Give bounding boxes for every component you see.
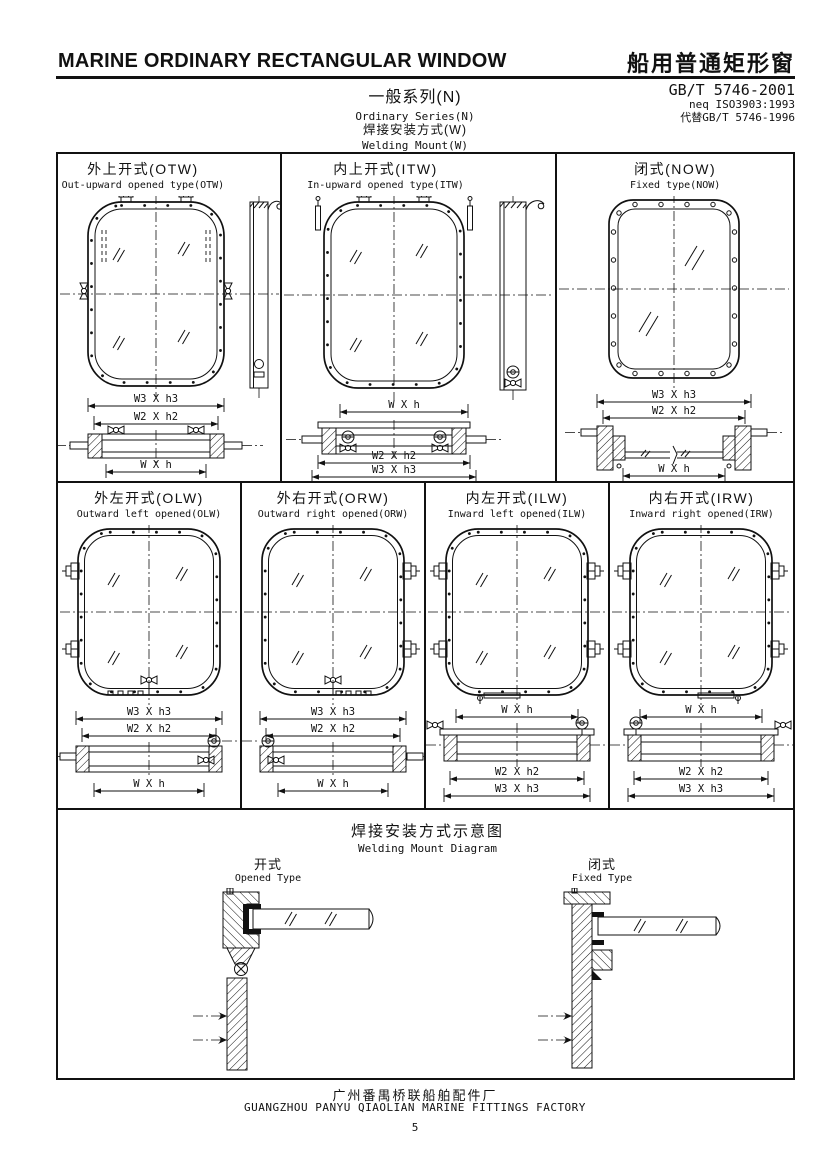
ilw-section-view (426, 717, 609, 767)
svg-text:W2 X h2: W2 X h2 (495, 766, 539, 778)
panel-orw-title-zh: 外右开式(ORW) (242, 488, 424, 508)
panel-olw-title: 外左开式(OLW) Outward left opened(OLW) (58, 483, 240, 525)
irw-drawing: W X h (610, 525, 793, 808)
drawing-table: 外上开式(OTW) Out-upward opened type(OTW) (56, 152, 795, 1080)
panel-itw-title-zh: 内上开式(ITW) (282, 159, 490, 179)
svg-text:W3 X h3: W3 X h3 (311, 706, 355, 718)
svg-text:W3 X h3: W3 X h3 (652, 389, 696, 401)
svg-text:W X h: W X h (658, 463, 690, 475)
panel-irw-title-zh: 内右开式(IRW) (610, 488, 793, 508)
welding-opened-label: 开式 Opened Type (198, 854, 338, 884)
ilw-dim-3: W3 X h3 (444, 783, 590, 802)
otw-front-view (60, 196, 279, 398)
panel-otw-title-en: Out-upward opened type(OTW) (58, 180, 228, 191)
itw-dim-1: W X h (340, 399, 468, 418)
mount-title-zh: 焊接安装方式(W) (255, 119, 575, 138)
olw-drawing: W3 X h3 W2 X h2 (58, 525, 241, 808)
welding-fixed-zh: 闭式 (532, 854, 672, 873)
panel-otw-title: 外上开式(OTW) Out-upward opened type(OTW) (58, 154, 280, 196)
now-drawing: W3 X h3 W2 X h2 (557, 196, 792, 481)
panel-orw-title: 外右开式(ORW) Outward right opened(ORW) (242, 483, 424, 525)
svg-text:W2 X h2: W2 X h2 (652, 405, 696, 417)
welding-fixed-drawing (538, 888, 753, 1074)
standard-equivalence: neq ISO3903:1993 (669, 99, 795, 112)
row-2: 外左开式(OLW) Outward left opened(OLW) (58, 483, 793, 810)
panel-irw-title: 内右开式(IRW) Inward right opened(IRW) (610, 483, 793, 525)
panel-irw-title-en: Inward right opened(IRW) (610, 509, 793, 520)
olw-section-view (58, 735, 241, 776)
panel-irw: 内右开式(IRW) Inward right opened(IRW) (610, 483, 793, 808)
irw-dim-1: W X h (640, 704, 762, 723)
panel-ilw-title-en: Inward left opened(ILW) (426, 509, 608, 520)
panel-itw-title: 内上开式(ITW) In-upward opened type(ITW) (282, 154, 556, 196)
welding-title-en: Welding Mount Diagram (58, 842, 797, 855)
ilw-dim-1: W X h (456, 704, 578, 723)
svg-text:W3 X h3: W3 X h3 (495, 783, 539, 795)
panel-olw: 外左开式(OLW) Outward left opened(OLW) (58, 483, 242, 808)
welding-opened-en: Opened Type (198, 873, 338, 884)
svg-text:W X h: W X h (685, 704, 717, 716)
svg-text:W2 X h2: W2 X h2 (679, 766, 723, 778)
series-block: 一般系列(N) Ordinary Series(N) (255, 83, 575, 123)
panel-ilw-title: 内左开式(ILW) Inward left opened(ILW) (426, 483, 608, 525)
ilw-front-view (428, 525, 607, 705)
standard-code: GB/T 5746-2001 (669, 82, 795, 99)
welding-opened-zh: 开式 (198, 854, 338, 873)
page-number: 5 (0, 1121, 830, 1134)
panel-olw-title-zh: 外左开式(OLW) (58, 488, 240, 508)
svg-text:W3 X h3: W3 X h3 (372, 464, 416, 476)
irw-dim-3: W3 X h3 (628, 783, 774, 802)
panel-now-title: 闭式(NOW) Fixed type(NOW) (557, 154, 793, 196)
otw-dim-3: W X h (106, 459, 206, 478)
panel-otw-title-zh: 外上开式(OTW) (58, 159, 228, 179)
standard-block: GB/T 5746-2001 neq ISO3903:1993 代替GB/T 5… (669, 82, 795, 125)
irw-front-view (612, 525, 791, 705)
orw-front-view (244, 525, 423, 705)
panel-olw-title-en: Outward left opened(OLW) (58, 509, 240, 520)
ilw-drawing: W X h (426, 525, 609, 808)
orw-drawing: W3 X h3 W2 X h2 (242, 525, 425, 808)
orw-section-view (242, 735, 425, 776)
olw-dim-2: W2 X h2 (82, 723, 216, 742)
panel-orw: 外右开式(ORW) Outward right opened(ORW) (242, 483, 426, 808)
panel-now-title-zh: 闭式(NOW) (557, 159, 793, 179)
factory-name-en: GUANGZHOU PANYU QIAOLIAN MARINE FITTINGS… (0, 1101, 830, 1114)
title-rule (56, 76, 795, 79)
orw-dim-2: W2 X h2 (266, 723, 400, 742)
otw-drawing: W3 X h3 W2 X h2 (58, 196, 281, 481)
now-dim-3: W X h (623, 463, 725, 481)
welding-section: 焊接安装方式示意图 Welding Mount Diagram 开式 Opene… (58, 810, 793, 1076)
svg-text:W2 X h2: W2 X h2 (372, 450, 416, 462)
page-title-zh: 船用普通矩形窗 (627, 46, 795, 78)
otw-dim-1: W3 X h3 (88, 393, 224, 412)
page-title-en: MARINE ORDINARY RECTANGULAR WINDOW (58, 50, 507, 73)
itw-front-view (284, 196, 552, 400)
itw-drawing: W X h (282, 196, 557, 481)
svg-text:W X h: W X h (501, 704, 533, 716)
otw-side-view (250, 196, 281, 400)
standard-replaces: 代替GB/T 5746-1996 (669, 112, 795, 125)
panel-now-title-en: Fixed type(NOW) (557, 180, 793, 191)
panel-itw-title-en: In-upward opened type(ITW) (282, 180, 490, 191)
svg-text:W3 X h3: W3 X h3 (134, 393, 178, 405)
welding-title: 焊接安装方式示意图 Welding Mount Diagram (58, 820, 797, 855)
panel-ilw-title-zh: 内左开式(ILW) (426, 488, 608, 508)
catalog-page: MARINE ORDINARY RECTANGULAR WINDOW 船用普通矩… (0, 0, 830, 1175)
now-dim-2: W2 X h2 (603, 405, 745, 424)
svg-text:W X h: W X h (140, 459, 172, 471)
svg-text:W X h: W X h (317, 778, 349, 790)
row-1: 外上开式(OTW) Out-upward opened type(OTW) (58, 154, 793, 483)
svg-text:W3 X h3: W3 X h3 (679, 783, 723, 795)
olw-dim-3: W X h (94, 778, 204, 797)
panel-ilw: 内左开式(ILW) Inward left opened(ILW) (426, 483, 610, 808)
orw-dim-3: W X h (278, 778, 388, 797)
olw-front-view (60, 525, 239, 705)
svg-text:W X h: W X h (133, 778, 165, 790)
panel-orw-title-en: Outward right opened(ORW) (242, 509, 424, 520)
otw-dim-2: W2 X h2 (94, 411, 218, 430)
svg-text:W2 X h2: W2 X h2 (134, 411, 178, 423)
svg-text:W2 X h2: W2 X h2 (127, 723, 171, 735)
welding-fixed-en: Fixed Type (532, 873, 672, 884)
welding-opened-drawing (193, 888, 408, 1074)
panel-now: 闭式(NOW) Fixed type(NOW) (557, 154, 793, 481)
irw-section-view (610, 717, 793, 767)
svg-text:W3 X h3: W3 X h3 (127, 706, 171, 718)
mount-block: 焊接安装方式(W) Welding Mount(W) (255, 119, 575, 152)
itw-dim-3: W3 X h3 (312, 464, 476, 481)
now-front-view (559, 196, 789, 390)
mount-title-en: Welding Mount(W) (255, 139, 575, 152)
svg-text:W2 X h2: W2 X h2 (311, 723, 355, 735)
welding-fixed-label: 闭式 Fixed Type (532, 854, 672, 884)
svg-text:W X h: W X h (388, 399, 420, 411)
panel-itw: 内上开式(ITW) In-upward opened type(ITW) (282, 154, 558, 481)
itw-side-view (500, 196, 544, 401)
panel-otw: 外上开式(OTW) Out-upward opened type(OTW) (58, 154, 282, 481)
welding-title-zh: 焊接安装方式示意图 (58, 820, 797, 841)
series-title-zh: 一般系列(N) (255, 83, 575, 107)
